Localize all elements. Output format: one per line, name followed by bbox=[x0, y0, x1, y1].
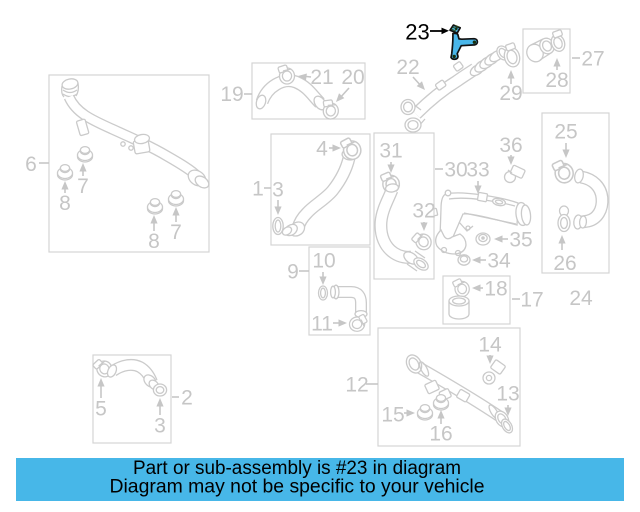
svg-text:16: 16 bbox=[429, 423, 452, 446]
svg-text:11: 11 bbox=[311, 313, 333, 336]
svg-text:Diagram may not be specific to: Diagram may not be specific to your vehi… bbox=[110, 477, 485, 498]
svg-text:3: 3 bbox=[154, 415, 166, 438]
svg-text:5: 5 bbox=[95, 398, 107, 421]
svg-text:23: 23 bbox=[405, 20, 429, 45]
svg-text:24: 24 bbox=[569, 287, 593, 310]
svg-text:25: 25 bbox=[554, 121, 577, 144]
svg-text:3: 3 bbox=[272, 179, 284, 202]
svg-text:26: 26 bbox=[553, 252, 576, 275]
svg-text:1: 1 bbox=[252, 178, 264, 201]
svg-text:9: 9 bbox=[287, 261, 299, 284]
svg-text:8: 8 bbox=[148, 230, 160, 253]
svg-text:7: 7 bbox=[170, 221, 182, 244]
svg-text:7: 7 bbox=[77, 175, 89, 198]
svg-text:33: 33 bbox=[466, 159, 489, 182]
svg-text:34: 34 bbox=[487, 250, 511, 273]
svg-text:13: 13 bbox=[496, 383, 519, 406]
svg-text:12: 12 bbox=[345, 374, 368, 397]
svg-text:20: 20 bbox=[341, 66, 364, 89]
svg-text:27: 27 bbox=[581, 48, 604, 71]
svg-text:17: 17 bbox=[520, 289, 543, 312]
svg-text:2: 2 bbox=[181, 387, 193, 410]
svg-text:15: 15 bbox=[381, 404, 404, 427]
svg-text:18: 18 bbox=[484, 278, 507, 301]
svg-text:19: 19 bbox=[220, 83, 243, 106]
svg-text:21: 21 bbox=[310, 66, 333, 89]
svg-text:4: 4 bbox=[316, 138, 328, 161]
svg-text:14: 14 bbox=[478, 334, 502, 357]
svg-text:36: 36 bbox=[499, 134, 522, 157]
svg-text:22: 22 bbox=[396, 56, 419, 79]
svg-text:6: 6 bbox=[25, 153, 37, 176]
svg-text:29: 29 bbox=[499, 82, 522, 105]
svg-text:10: 10 bbox=[312, 250, 335, 273]
svg-text:8: 8 bbox=[59, 192, 71, 215]
svg-text:28: 28 bbox=[545, 69, 568, 92]
svg-text:30: 30 bbox=[444, 159, 467, 182]
svg-text:31: 31 bbox=[379, 140, 402, 163]
svg-text:35: 35 bbox=[509, 229, 532, 252]
svg-text:32: 32 bbox=[412, 200, 435, 223]
